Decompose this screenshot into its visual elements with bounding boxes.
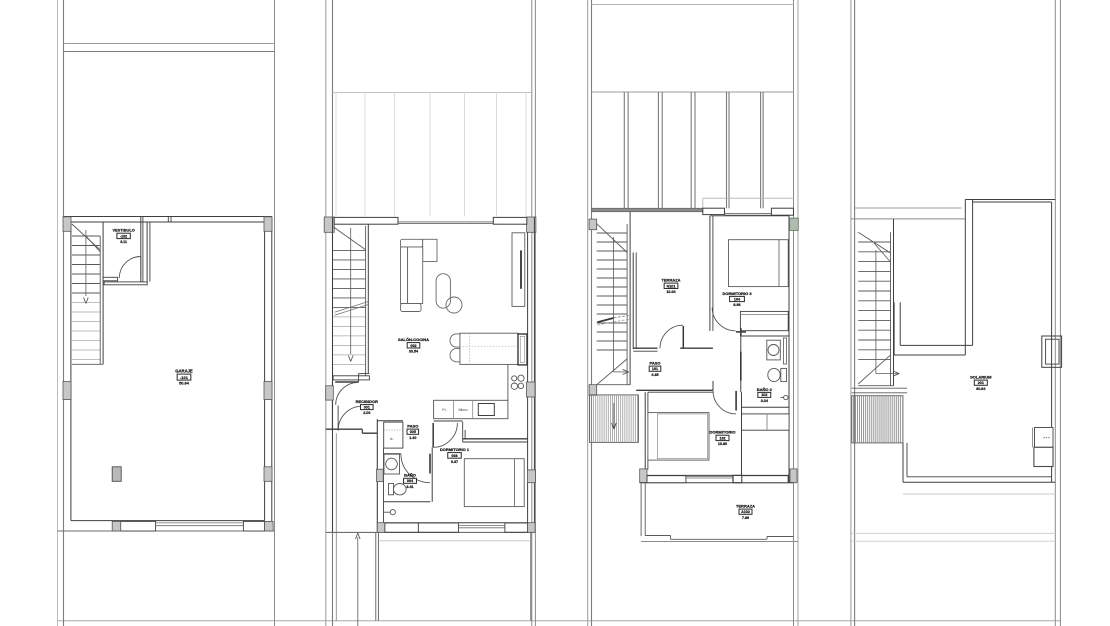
svg-text:33.54: 33.54 bbox=[409, 350, 419, 354]
svg-text:50.94: 50.94 bbox=[179, 381, 190, 386]
svg-text:005: 005 bbox=[410, 430, 416, 434]
svg-text:101: 101 bbox=[652, 367, 658, 371]
svg-text:1.40: 1.40 bbox=[409, 436, 416, 440]
svg-text:10.80: 10.80 bbox=[718, 442, 727, 446]
svg-text:3.11: 3.11 bbox=[120, 240, 127, 244]
svg-text:104: 104 bbox=[734, 297, 741, 301]
svg-text:PASO: PASO bbox=[407, 424, 418, 429]
svg-text:N101: N101 bbox=[667, 284, 676, 288]
svg-text:Fr.: Fr. bbox=[442, 408, 446, 412]
svg-text:10.04: 10.04 bbox=[666, 290, 676, 294]
svg-text:-101: -101 bbox=[180, 375, 189, 380]
svg-text:PASO: PASO bbox=[649, 361, 660, 366]
svg-text:30.84: 30.84 bbox=[976, 387, 986, 391]
svg-text:003: 003 bbox=[451, 454, 457, 458]
svg-text:SALÓN-COCINA: SALÓN-COCINA bbox=[398, 337, 429, 342]
svg-text:-102: -102 bbox=[120, 234, 127, 238]
svg-text:8.96: 8.96 bbox=[733, 303, 740, 307]
svg-text:TERRAZA: TERRAZA bbox=[736, 504, 755, 509]
svg-text:BAÑO: BAÑO bbox=[404, 473, 416, 478]
svg-text:102: 102 bbox=[719, 436, 725, 440]
svg-text:2.00: 2.00 bbox=[363, 411, 370, 415]
svg-text:A102: A102 bbox=[741, 510, 750, 514]
svg-text:9.37: 9.37 bbox=[451, 460, 458, 464]
svg-text:VESTIBULO: VESTIBULO bbox=[112, 228, 134, 233]
svg-text:201: 201 bbox=[978, 381, 984, 385]
svg-text:SOLARIUM: SOLARIUM bbox=[970, 375, 992, 380]
svg-text:102: 102 bbox=[761, 393, 767, 397]
svg-text:GARAJE: GARAJE bbox=[175, 369, 193, 374]
svg-text:3.34: 3.34 bbox=[761, 399, 769, 403]
svg-text:Micro.: Micro. bbox=[458, 408, 468, 412]
svg-text:BAÑO 2: BAÑO 2 bbox=[757, 387, 773, 392]
svg-text:DORMITORIO 3: DORMITORIO 3 bbox=[722, 291, 752, 296]
svg-text:4.35: 4.35 bbox=[651, 373, 658, 377]
svg-text:3.41: 3.41 bbox=[406, 485, 413, 489]
svg-text:lx.: lx. bbox=[390, 437, 394, 441]
svg-text:001: 001 bbox=[364, 405, 370, 409]
svg-text:DORMITORIO 1: DORMITORIO 1 bbox=[440, 447, 470, 452]
svg-text:TERRAZA: TERRAZA bbox=[661, 278, 680, 283]
svg-text:002: 002 bbox=[410, 344, 416, 348]
svg-text:004: 004 bbox=[407, 479, 414, 483]
svg-text:DORMITORIO: DORMITORIO bbox=[710, 430, 736, 435]
svg-text:7.89: 7.89 bbox=[742, 516, 749, 520]
svg-text:RECIBIDOR: RECIBIDOR bbox=[356, 399, 379, 404]
